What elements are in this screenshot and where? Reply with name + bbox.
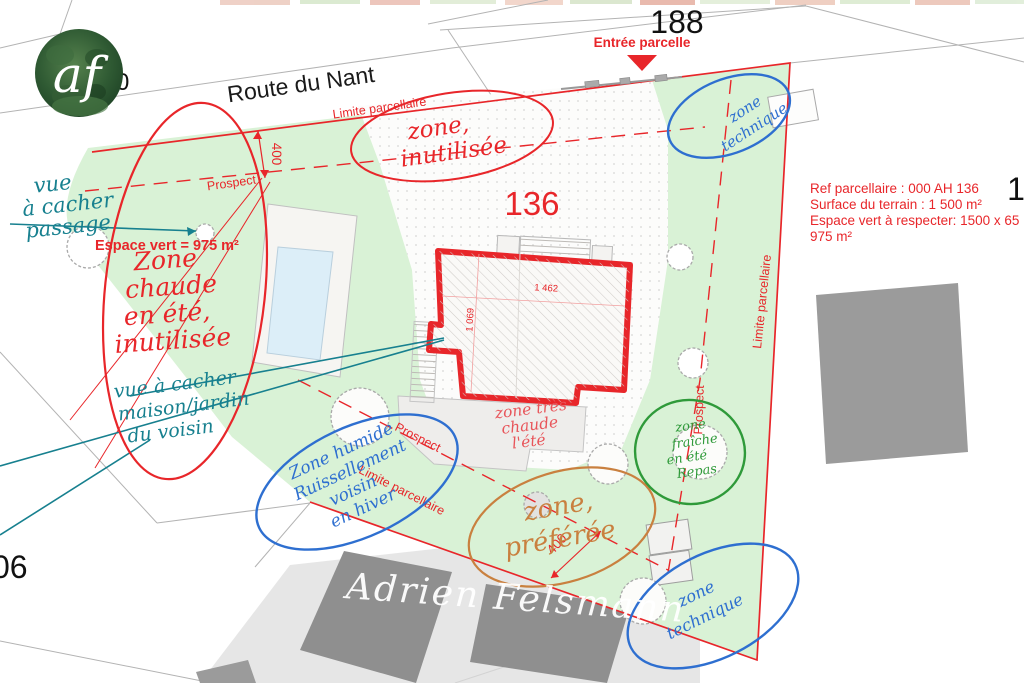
logo-initials: af bbox=[53, 46, 109, 104]
info-espace-vert: Espace vert à respecter: 1500 x 65 bbox=[810, 213, 1019, 228]
info-ref-parcellaire: Ref parcellaire : 000 AH 136 bbox=[810, 181, 979, 196]
building-length-dimension: 1 462 bbox=[534, 282, 558, 294]
setback-front-dimension: 400 bbox=[269, 143, 284, 166]
swimming-pool bbox=[252, 204, 357, 377]
parcel-number-east: 1 bbox=[1007, 171, 1024, 207]
info-surface-terrain: Surface du terrain : 1 500 m² bbox=[810, 197, 982, 212]
parcel-number-southwest: 06 bbox=[0, 549, 28, 585]
technical-shed-south-1 bbox=[646, 519, 692, 555]
site-plan-page: 1 462 1 069 400 400 Limite parcellaire L… bbox=[0, 0, 1024, 683]
info-espace-vert-2: 975 m² bbox=[810, 229, 853, 244]
parcel-number-north: 188 bbox=[650, 4, 703, 40]
parcel-number-main: 136 bbox=[504, 185, 559, 222]
neighbor-building-east bbox=[816, 283, 968, 464]
site-plan-svg: 1 462 1 069 400 400 Limite parcellaire L… bbox=[0, 0, 1024, 683]
tree bbox=[667, 244, 693, 270]
main-building bbox=[429, 251, 630, 403]
technical-shed-south-2 bbox=[649, 550, 693, 585]
tree bbox=[678, 348, 708, 378]
logo-avatar: af bbox=[35, 29, 123, 117]
building-width-dimension: 1 069 bbox=[464, 308, 476, 332]
tree bbox=[588, 444, 628, 484]
